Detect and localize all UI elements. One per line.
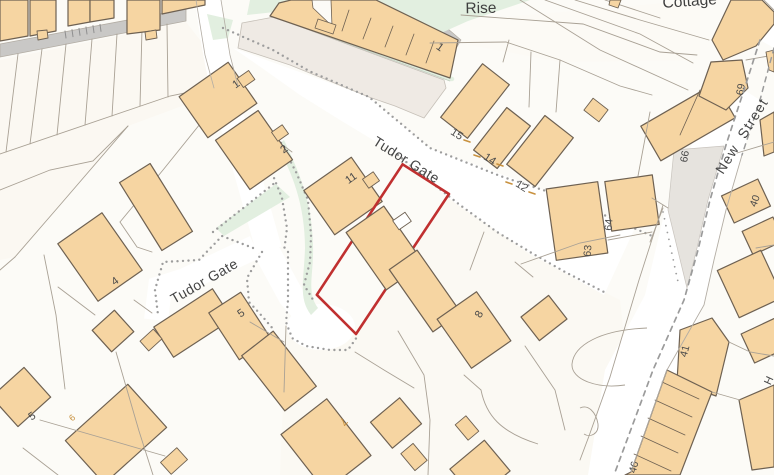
- svg-text:63: 63: [582, 244, 595, 257]
- svg-text:66: 66: [678, 150, 692, 164]
- svg-text:69: 69: [734, 83, 748, 97]
- svg-text:64: 64: [603, 218, 616, 231]
- svg-text:Rise: Rise: [465, 0, 496, 17]
